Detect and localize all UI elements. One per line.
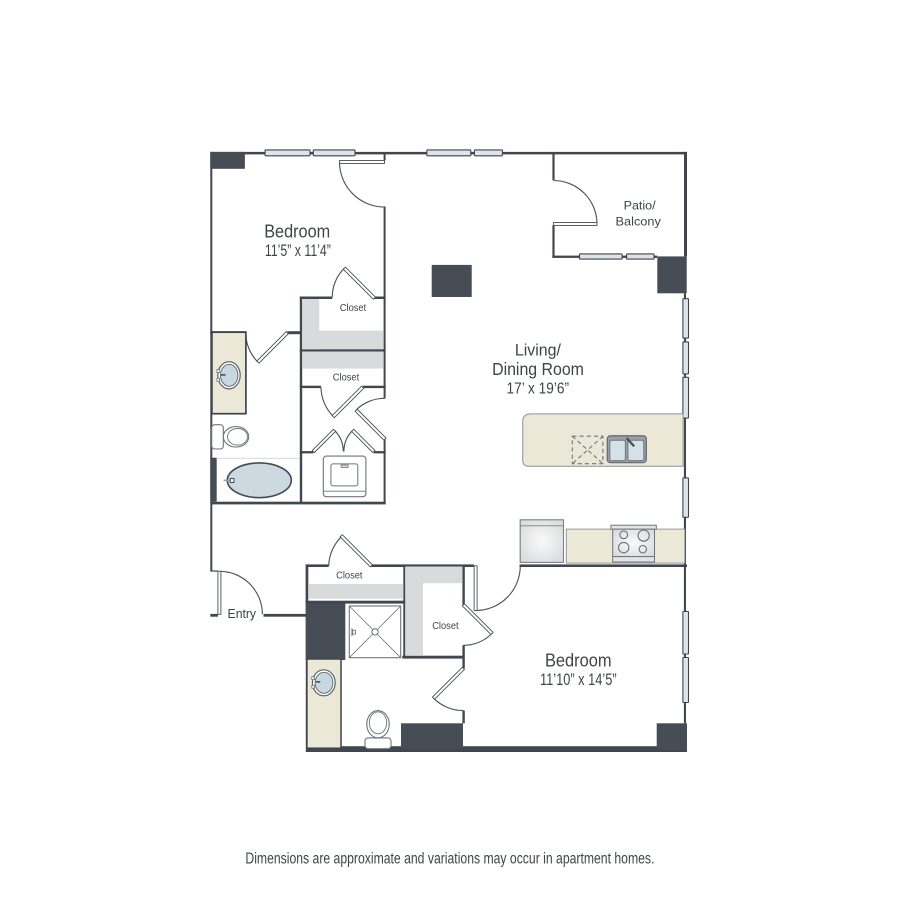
svg-text:Entry: Entry	[228, 606, 257, 621]
svg-text:Bedroom: Bedroom	[264, 221, 330, 242]
svg-text:11’10” x 14’5”: 11’10” x 14’5”	[540, 671, 617, 689]
svg-text:Dimensions are approximate and: Dimensions are approximate and variation…	[245, 851, 654, 868]
svg-text:Closet: Closet	[336, 571, 363, 582]
svg-text:17’ x 19’6”: 17’ x 19’6”	[507, 380, 570, 397]
svg-text:Balcony: Balcony	[616, 214, 662, 228]
svg-text:Bedroom: Bedroom	[545, 650, 612, 671]
svg-text:Closet: Closet	[432, 621, 459, 632]
svg-text:Closet: Closet	[340, 303, 367, 314]
svg-text:Closet: Closet	[333, 372, 360, 383]
svg-text:Living/: Living/	[515, 340, 561, 359]
svg-text:Dining Room: Dining Room	[492, 359, 584, 379]
svg-text:Patio/: Patio/	[624, 198, 657, 212]
svg-text:11’5” x 11’4”: 11’5” x 11’4”	[265, 242, 331, 260]
